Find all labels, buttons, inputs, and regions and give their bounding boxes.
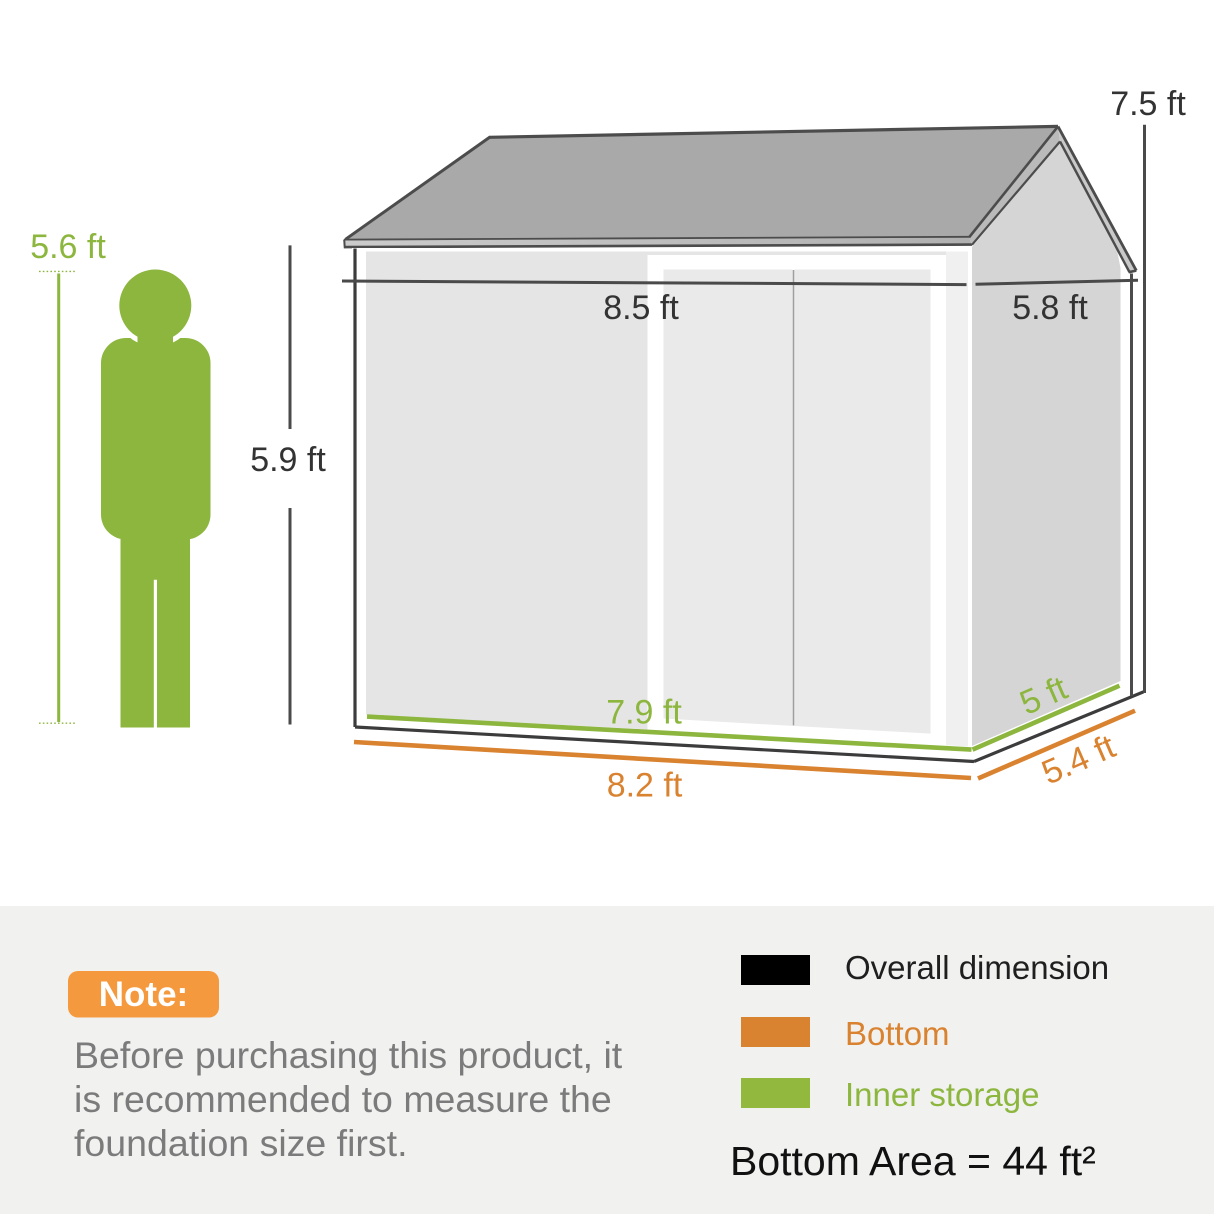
svg-text:5.8 ft: 5.8 ft xyxy=(1012,289,1088,327)
svg-text:Bottom Area = 44 ft²: Bottom Area = 44 ft² xyxy=(730,1138,1096,1184)
svg-text:foundation size first.: foundation size first. xyxy=(74,1122,408,1164)
svg-text:Bottom: Bottom xyxy=(845,1015,950,1052)
svg-text:5.9 ft: 5.9 ft xyxy=(250,441,326,479)
svg-text:Overall dimension: Overall dimension xyxy=(845,949,1109,986)
svg-text:8.5 ft: 8.5 ft xyxy=(603,289,679,327)
svg-text:Note:: Note: xyxy=(99,975,188,1014)
svg-text:5.6 ft: 5.6 ft xyxy=(30,228,106,266)
svg-text:Before purchasing this product: Before purchasing this product, it xyxy=(74,1034,623,1076)
svg-text:Inner storage: Inner storage xyxy=(845,1076,1039,1113)
svg-text:7.5 ft: 7.5 ft xyxy=(1110,85,1186,123)
svg-text:is recommended to measure the: is recommended to measure the xyxy=(74,1078,612,1120)
svg-text:7.9 ft: 7.9 ft xyxy=(606,694,682,732)
svg-text:8.2 ft: 8.2 ft xyxy=(607,767,683,805)
